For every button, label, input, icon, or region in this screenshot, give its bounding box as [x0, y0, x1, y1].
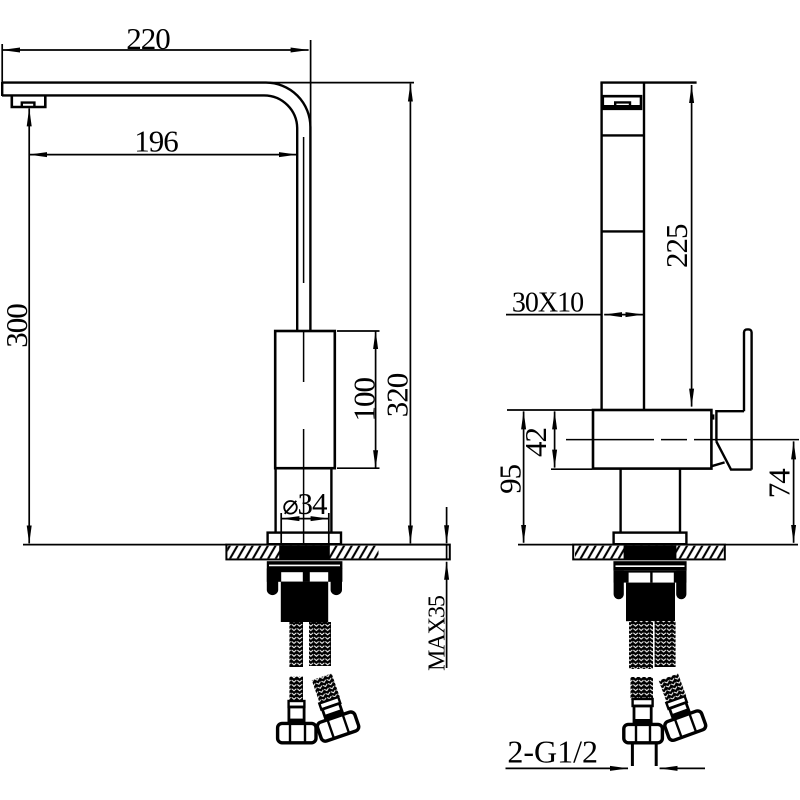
svg-text:225: 225 — [659, 224, 694, 268]
svg-text:196: 196 — [134, 124, 178, 159]
svg-text:320: 320 — [380, 373, 415, 417]
svg-text:95: 95 — [493, 464, 528, 494]
svg-text:MAX35: MAX35 — [425, 595, 451, 671]
svg-text:34: 34 — [298, 486, 329, 521]
svg-text:220: 220 — [126, 21, 170, 56]
svg-text:100: 100 — [347, 378, 382, 422]
svg-text:74: 74 — [762, 468, 797, 499]
svg-text:300: 300 — [0, 304, 34, 348]
svg-text:2-G1/2: 2-G1/2 — [507, 734, 598, 770]
